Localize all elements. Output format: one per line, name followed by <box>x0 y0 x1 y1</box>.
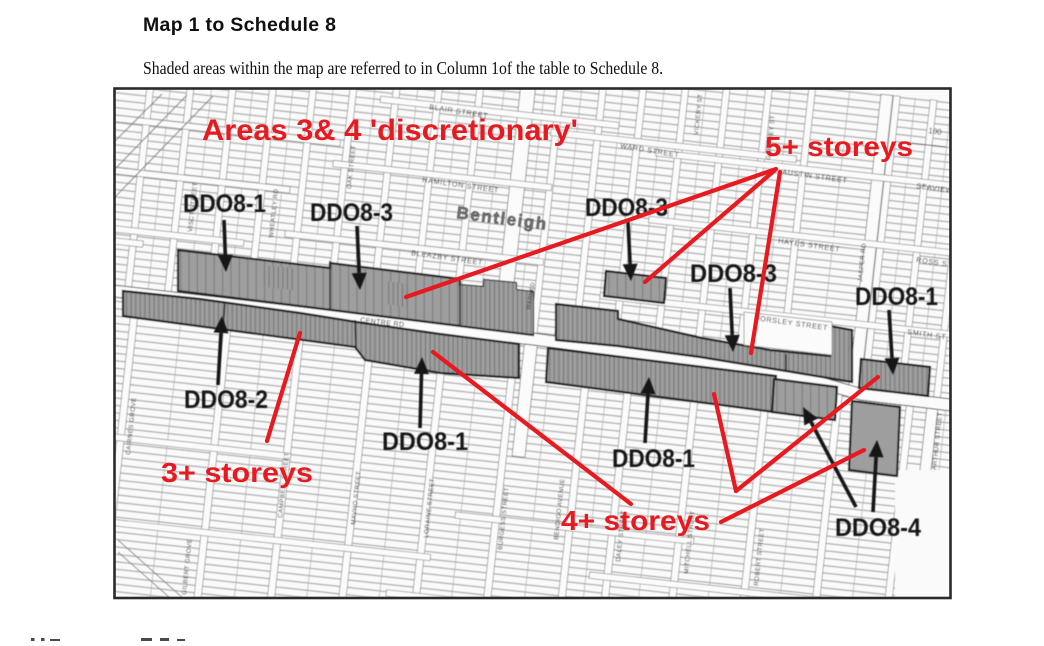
svg-text:DDO8-2: DDO8-2 <box>184 386 268 414</box>
svg-text:DDO8-1: DDO8-1 <box>612 445 695 473</box>
svg-text:DDO8-3: DDO8-3 <box>585 194 668 222</box>
svg-text:5+ storeys: 5+ storeys <box>765 131 913 162</box>
svg-text:DDO8-1: DDO8-1 <box>855 283 938 311</box>
svg-text:DDO8-1: DDO8-1 <box>382 428 468 456</box>
svg-text:Areas 3& 4 'discretionary': Areas 3& 4 'discretionary' <box>202 114 578 147</box>
svg-text:Map 1 to Schedule 8: Map 1 to Schedule 8 <box>143 14 336 36</box>
svg-text:DDO8-1: DDO8-1 <box>183 190 266 218</box>
svg-text:DDO8-4: DDO8-4 <box>835 514 921 542</box>
svg-text:100: 100 <box>928 126 943 137</box>
svg-text:3+ storeys: 3+ storeys <box>161 457 313 488</box>
svg-text:DDO8-3: DDO8-3 <box>310 199 393 227</box>
svg-text:Shaded areas within the map ar: Shaded areas within the map are referred… <box>143 58 663 78</box>
svg-text:4+ storeys: 4+ storeys <box>561 505 710 536</box>
